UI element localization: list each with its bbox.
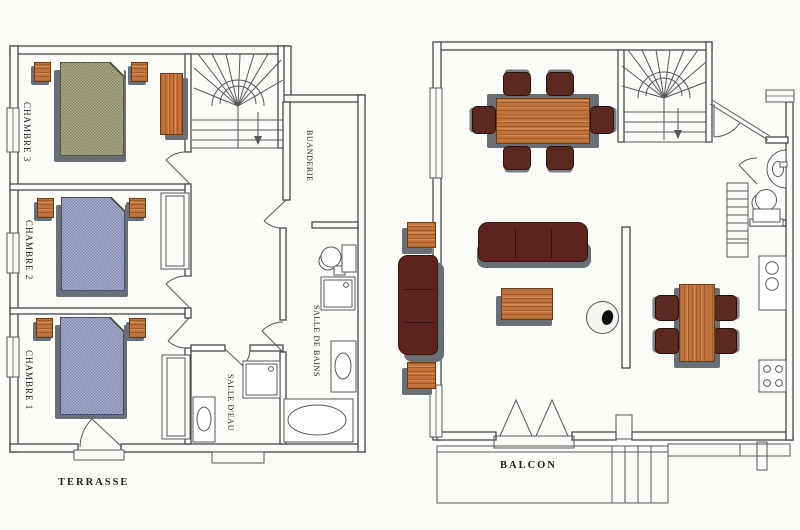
- room-label-salle-d-eau: SALLE D'EAU: [226, 374, 235, 431]
- dining-table: [496, 98, 590, 144]
- room-label-chambre3: CHAMBRE 3: [22, 102, 32, 162]
- wood-stove: [586, 301, 619, 334]
- wc-fixtures: [750, 150, 787, 226]
- main-floor-diagonal-wall: [710, 100, 770, 140]
- side-table: [407, 222, 436, 248]
- dining-chair: [503, 72, 531, 96]
- dining-chair: [546, 146, 574, 170]
- nightstand: [129, 318, 146, 338]
- bed-2: [61, 197, 125, 291]
- bed-1: [60, 317, 124, 415]
- nightstand: [129, 198, 146, 218]
- room-label-chambre2: CHAMBRE 2: [24, 220, 34, 280]
- nightstand: [37, 198, 54, 218]
- room-label-salle-de-bains: SALLE DE BAINS: [312, 305, 321, 377]
- dining-chair: [713, 295, 737, 321]
- room-label-buanderie: BUANDERIE: [305, 130, 314, 182]
- dining-chair: [546, 72, 574, 96]
- wooden-wardrobe: [160, 73, 183, 135]
- side-table: [407, 362, 436, 389]
- floorplan-canvas: CHAMBRE 3 CHAMBRE 2 CHAMBRE 1 BUANDERIE …: [0, 0, 800, 530]
- nightstand: [34, 62, 51, 82]
- nightstand: [131, 62, 148, 82]
- dining-chair: [655, 328, 679, 354]
- dining-chair: [472, 106, 496, 134]
- bed-1-fold: [109, 317, 124, 332]
- dining-chair: [713, 328, 737, 354]
- dining-chair: [503, 146, 531, 170]
- sofa-3-seat: [478, 222, 588, 262]
- small-dining-table: [679, 284, 715, 362]
- room-label-chambre1: CHAMBRE 1: [24, 350, 34, 410]
- coffee-table: [501, 288, 553, 320]
- outdoor-label-terrasse: TERRASSE: [58, 477, 129, 488]
- main-floor-staircase: [622, 50, 712, 142]
- sofa-2-seat: [398, 255, 438, 355]
- nightstand: [36, 318, 53, 338]
- kitchen-fixtures: [757, 250, 786, 432]
- upper-floor-staircase: [191, 54, 284, 148]
- outdoor-label-balcon: BALCON: [500, 460, 557, 471]
- dining-chair: [590, 106, 614, 134]
- dining-chair: [655, 295, 679, 321]
- stove-door: [600, 309, 615, 326]
- bed-2-fold: [110, 197, 125, 212]
- balcony-structure: [437, 442, 790, 503]
- bed-3: [60, 62, 124, 156]
- bed-3-fold: [109, 62, 124, 77]
- wc-staircase: [727, 183, 748, 257]
